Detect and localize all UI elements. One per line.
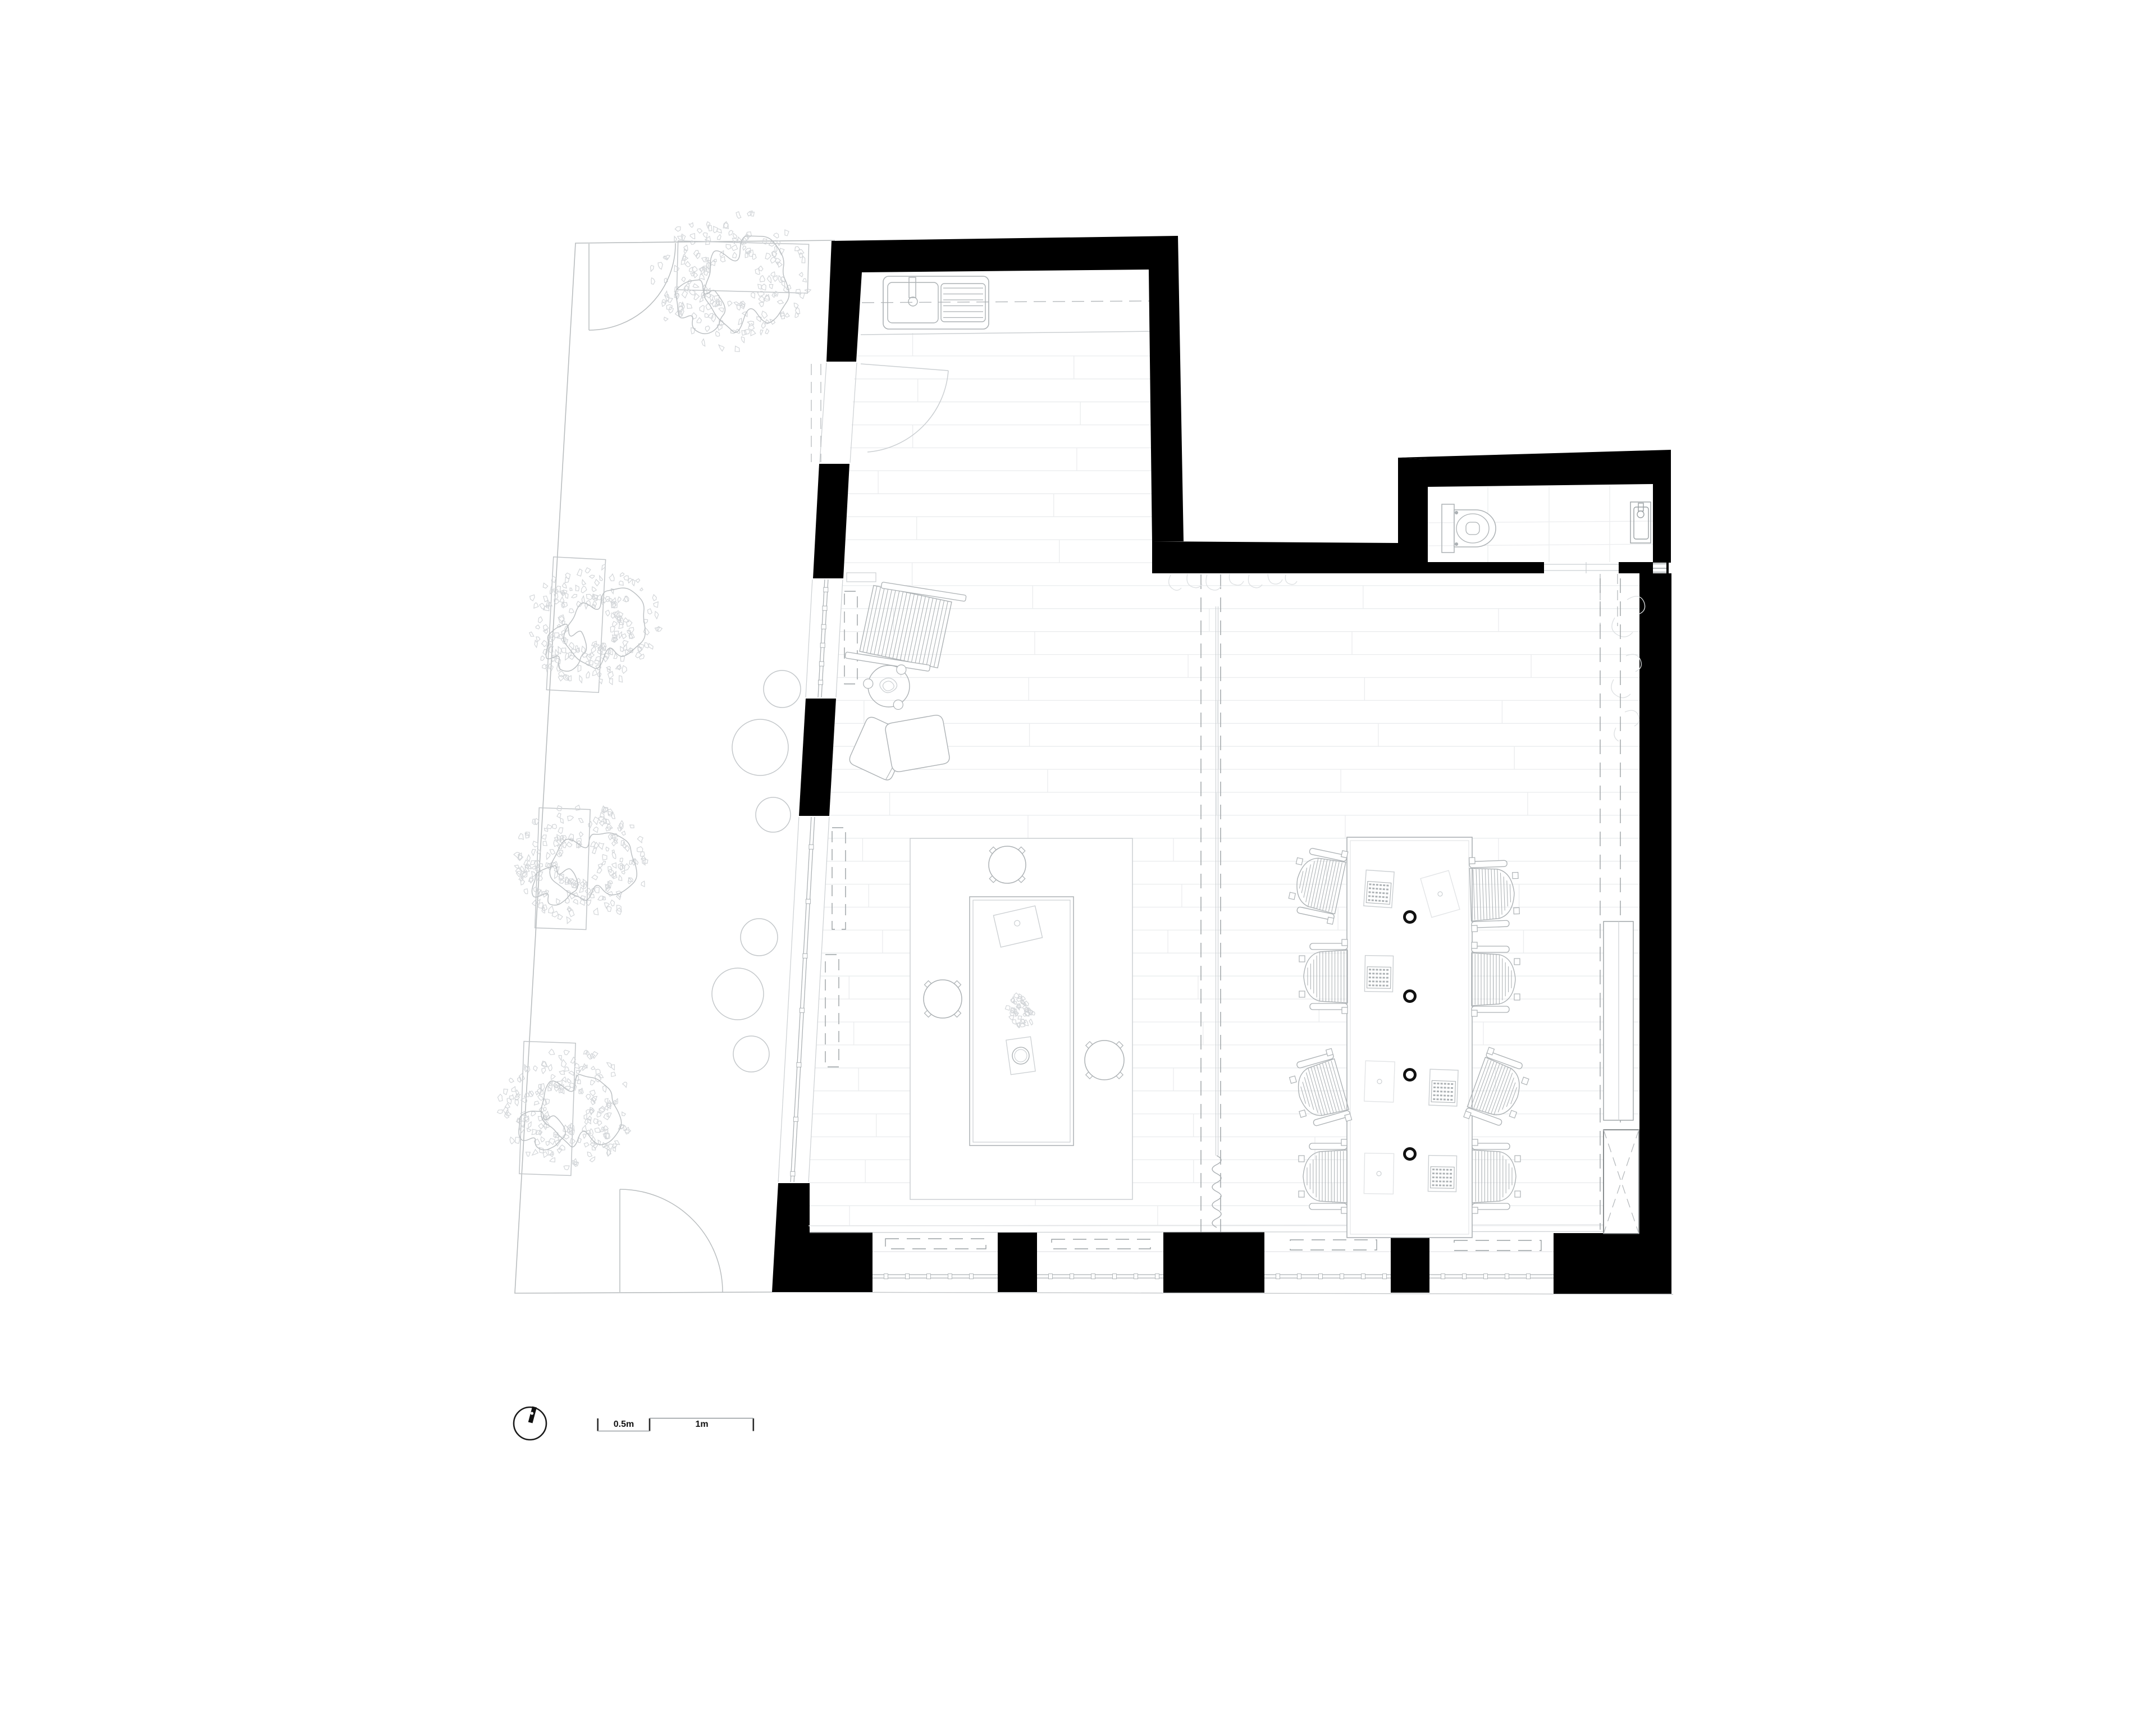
svg-text:1m: 1m <box>695 1420 708 1429</box>
svg-text:0.5m: 0.5m <box>614 1420 634 1429</box>
